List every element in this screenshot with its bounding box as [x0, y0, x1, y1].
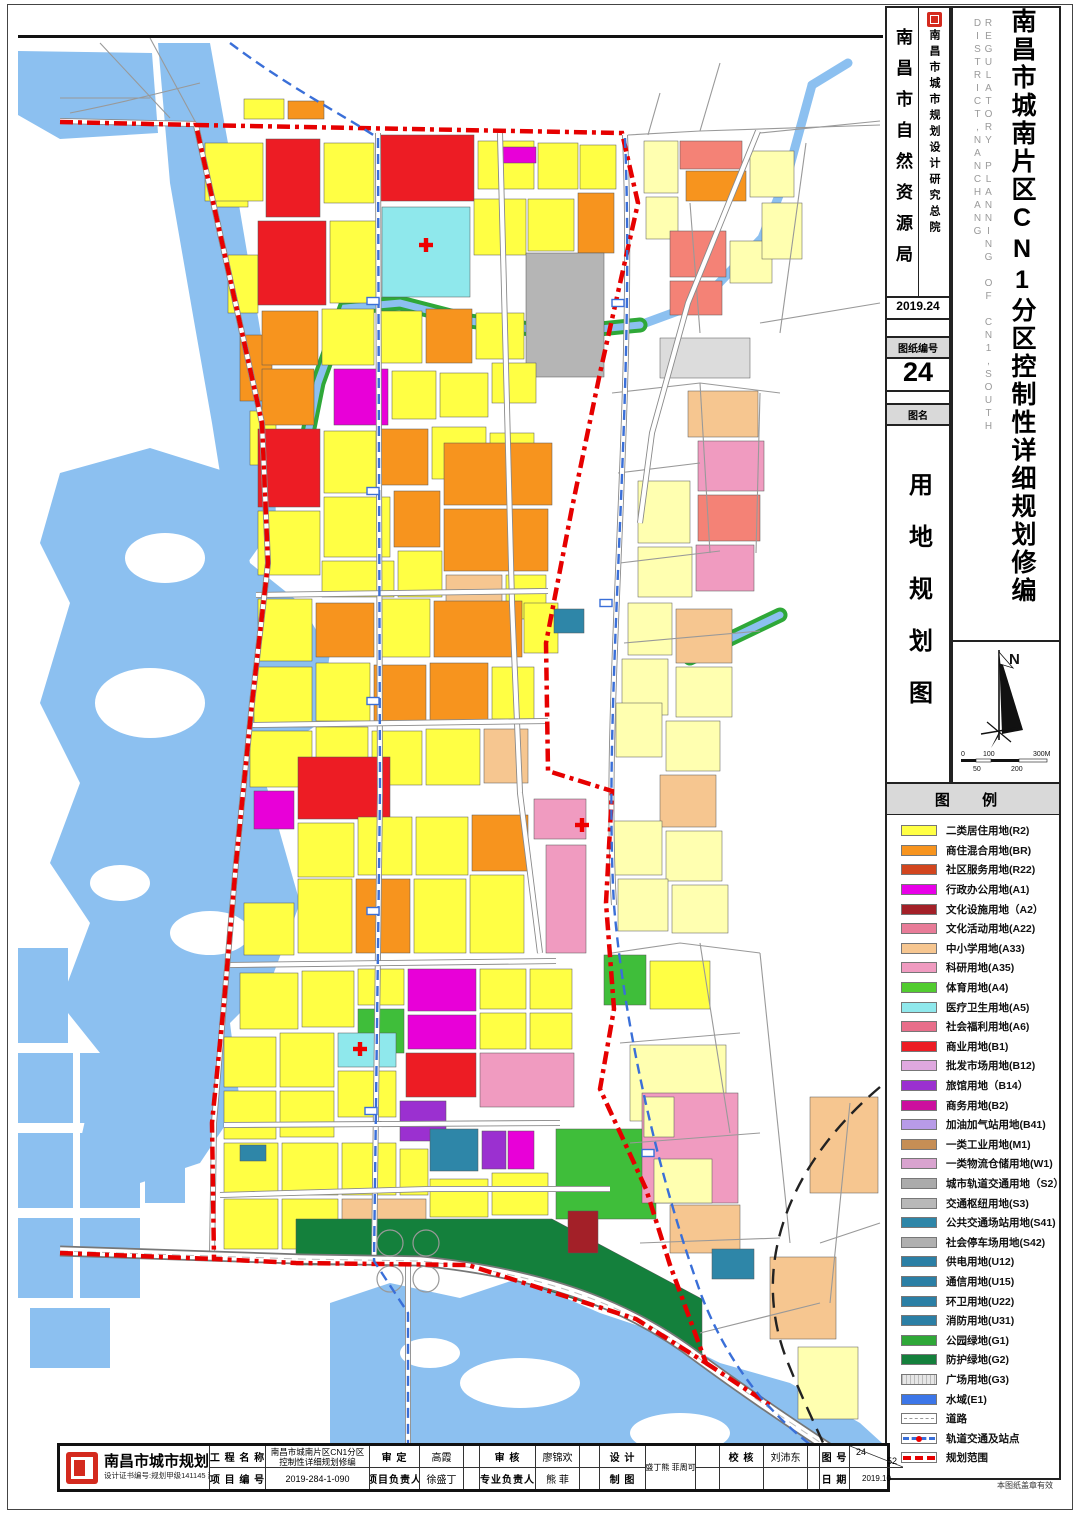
metro-station	[642, 1150, 654, 1157]
parcel	[480, 969, 526, 1009]
institute-logo-icon	[66, 1452, 98, 1484]
title-english: REGULATORY PLANNING OF CN1,SOUTH DISTRIC…	[972, 18, 994, 640]
legend-item: 交通枢纽用地(S3)	[901, 1193, 1059, 1213]
parcel	[380, 429, 428, 485]
legend-item: 通信用地(U15)	[901, 1272, 1059, 1292]
legend-label: 加油加气站用地(B41)	[946, 1117, 1046, 1132]
legend-item: 环卫用地(U22)	[901, 1291, 1059, 1311]
legend-item: 水域(E1)	[901, 1389, 1059, 1409]
legend-label: 交通枢纽用地(S3)	[946, 1196, 1029, 1211]
parcel	[254, 667, 312, 727]
legend-swatch-icon	[901, 1276, 937, 1287]
legend-label: 二类居住用地(R2)	[946, 823, 1029, 838]
legend-label: 行政办公用地(A1)	[946, 882, 1029, 897]
legend-label: 公园绿地(G1)	[946, 1333, 1009, 1348]
parcel	[526, 253, 604, 377]
parcel	[430, 1129, 478, 1171]
sheet-number: 24	[885, 355, 951, 392]
legend-label: 公共交通场站用地(S41)	[946, 1215, 1056, 1230]
pond	[18, 948, 68, 1043]
legend-swatch-icon	[901, 1452, 937, 1463]
parcel	[434, 601, 522, 657]
parcel	[660, 775, 716, 827]
legend-item: 防护绿地(G2)	[901, 1350, 1059, 1370]
parcel	[480, 1013, 526, 1049]
legend-label: 轨道交通及站点	[946, 1431, 1020, 1446]
legend-item: 文化活动用地(A22)	[901, 919, 1059, 939]
legend-item: 社会福利用地(A6)	[901, 1017, 1059, 1037]
legend-swatch-icon	[901, 1080, 937, 1091]
parcel	[224, 1199, 278, 1249]
legend-swatch-icon	[901, 1178, 937, 1189]
legend-item: 一类物流仓储用地(W1)	[901, 1154, 1059, 1174]
legend-label: 城市轨道交通用地（S2）	[946, 1176, 1064, 1191]
legend-item: 批发市场用地(B12)	[901, 1056, 1059, 1076]
project-no-label: 项 目 编 号	[210, 1468, 265, 1489]
road	[618, 463, 700, 473]
archive-number: 2019.24	[885, 294, 951, 320]
legend-label: 社会停车场用地(S42)	[946, 1235, 1045, 1250]
legend-label: 文化活动用地(A22)	[946, 921, 1035, 936]
svg-text:50: 50	[973, 766, 981, 773]
legend-label: 供电用地(U12)	[946, 1254, 1014, 1269]
design-label: 设 计	[600, 1446, 645, 1468]
land-use-map[interactable]	[18, 35, 883, 1443]
parcel	[476, 313, 524, 359]
legend-label: 一类工业用地(M1)	[946, 1137, 1031, 1152]
pond	[80, 1053, 140, 1123]
parcel	[688, 391, 758, 437]
legend-item: 规划范围	[901, 1448, 1059, 1468]
legend-label: 社区服务用地(R22)	[946, 862, 1035, 877]
legend-swatch-icon	[901, 1119, 937, 1130]
legend-label: 中小学用地(A33)	[946, 941, 1025, 956]
spacer-box	[885, 318, 951, 338]
legend-label: 防护绿地(G2)	[946, 1352, 1009, 1367]
legend-swatch-icon	[901, 1256, 937, 1267]
parcel	[298, 823, 354, 877]
parcel	[530, 969, 572, 1009]
fig-no-label: 图 号	[820, 1446, 849, 1468]
parcel	[280, 1091, 334, 1137]
legend-title: 图 例	[887, 784, 1059, 815]
legend-swatch-icon	[901, 1021, 937, 1032]
parcel	[444, 443, 552, 505]
title-box: REGULATORY PLANNING OF CN1,SOUTH DISTRIC…	[951, 6, 1061, 642]
legend-label: 文化设施用地（A2）	[946, 902, 1043, 917]
road	[760, 121, 880, 133]
legend-swatch-icon	[901, 1335, 937, 1346]
parcel	[254, 791, 294, 829]
legend-swatch-icon	[901, 1217, 937, 1228]
parcel	[492, 363, 536, 403]
institute-logo-icon	[927, 12, 942, 27]
parcel	[262, 311, 318, 365]
road	[820, 1223, 880, 1243]
svg-text:300M: 300M	[1033, 751, 1051, 758]
pond	[30, 1308, 110, 1368]
road	[224, 1123, 560, 1125]
legend-item: 商业用地(B1)	[901, 1037, 1059, 1057]
parcel	[430, 663, 488, 721]
legend-label: 商住混合用地(BR)	[946, 843, 1031, 858]
legend-label: 广场用地(G3)	[946, 1372, 1009, 1387]
parcel	[810, 1097, 878, 1193]
legend-swatch-icon	[901, 904, 937, 915]
parcel	[696, 545, 754, 591]
legend-item: 供电用地(U12)	[901, 1252, 1059, 1272]
parcel	[282, 1143, 338, 1195]
water-body	[18, 51, 158, 139]
parcel	[406, 1053, 476, 1097]
legend-label: 科研用地(A35)	[946, 960, 1014, 975]
reviewer: 廖锦欢	[536, 1446, 579, 1468]
parcel	[416, 817, 468, 875]
parcel	[712, 1249, 754, 1279]
parcel	[378, 135, 474, 201]
legend-item: 社会停车场用地(S42)	[901, 1232, 1059, 1252]
parcel	[770, 1257, 836, 1339]
road	[700, 63, 720, 131]
parcel	[302, 971, 354, 1027]
legend-swatch-icon	[901, 845, 937, 856]
legend-swatch-icon	[901, 1198, 937, 1209]
legend-label: 一类物流仓储用地(W1)	[946, 1156, 1053, 1171]
legend-swatch-icon	[901, 1433, 937, 1444]
parcel	[508, 1131, 534, 1169]
parcel	[638, 547, 692, 597]
legend-item: 科研用地(A35)	[901, 958, 1059, 978]
figure-number: 24 52	[850, 1446, 903, 1468]
plan-sheet: 南昌市自然资源局 南昌市城市规划设计研究总院 2019.24 图纸编号 24 图…	[0, 0, 1080, 1514]
legend-item: 公共交通场站用地(S41)	[901, 1213, 1059, 1233]
approve-label: 审 定	[370, 1446, 419, 1468]
metro-station	[367, 908, 379, 915]
parcel	[578, 193, 614, 253]
parcel	[342, 1143, 396, 1195]
parcel	[762, 203, 802, 259]
legend-swatch-icon	[901, 1394, 937, 1405]
org-row: 南昌市自然资源局 南昌市城市规划设计研究总院	[885, 6, 951, 298]
parcel	[538, 143, 578, 189]
legend-label: 医疗卫生用地(A5)	[946, 1000, 1029, 1015]
metro-station	[367, 298, 379, 305]
legend-item: 医疗卫生用地(A5)	[901, 997, 1059, 1017]
legend-item: 社区服务用地(R22)	[901, 860, 1059, 880]
parcel	[408, 969, 476, 1011]
legend-swatch-icon	[901, 1139, 937, 1150]
parcel	[240, 1145, 266, 1161]
parcel	[482, 1131, 506, 1169]
legend-item: 加油加气站用地(B41)	[901, 1115, 1059, 1135]
parcel	[356, 879, 410, 953]
parcel	[324, 143, 374, 203]
institute-cert: 设计证书编号:规划甲级141145 建筑甲级A136001290	[104, 1470, 209, 1481]
map-canvas	[18, 38, 883, 1443]
metro-station	[612, 300, 624, 307]
date-value: 2019.10	[850, 1468, 903, 1489]
parcel	[358, 969, 404, 1005]
legend-item: 旅馆用地（B14）	[901, 1076, 1059, 1096]
pond	[145, 1133, 185, 1203]
parcel	[618, 879, 668, 931]
parcel	[262, 369, 314, 425]
check-label: 校 核	[720, 1446, 763, 1468]
canal	[812, 63, 848, 85]
metro-station	[367, 698, 379, 705]
parcel	[492, 1173, 548, 1215]
parcel	[472, 815, 528, 871]
project-name: 南昌市城南片区CN1分区 控制性详细规划修编	[266, 1446, 369, 1468]
parcel	[244, 903, 294, 955]
road	[648, 93, 660, 135]
legend-item: 商务用地(B2)	[901, 1095, 1059, 1115]
road	[612, 943, 760, 953]
map-name: 用地规划图	[885, 422, 951, 784]
legend-swatch-icon	[901, 1413, 937, 1424]
parcel	[530, 1013, 572, 1049]
legend-swatch-icon	[901, 1002, 937, 1013]
legend-item: 轨道交通及站点	[901, 1428, 1059, 1448]
prolead: 熊 菲	[536, 1468, 579, 1489]
legend-item: 体育用地(A4)	[901, 978, 1059, 998]
parcel	[750, 151, 794, 197]
title-block: 南昌市城市规划设计研究总院 设计证书编号:规划甲级141145 建筑甲级A136…	[57, 1443, 890, 1492]
metro-station	[600, 600, 612, 607]
legend-swatch-icon	[901, 1158, 937, 1169]
parcel	[414, 879, 466, 953]
parcel	[224, 1091, 276, 1139]
institute-name: 南昌市城市规划设计研究总院	[104, 1454, 209, 1470]
legend-swatch-icon	[901, 923, 937, 934]
legend-swatch-icon	[901, 1296, 937, 1307]
parcel	[440, 373, 488, 417]
date-label: 日 期	[820, 1468, 849, 1489]
legend-label: 通信用地(U15)	[946, 1274, 1014, 1289]
parcel	[698, 441, 764, 491]
north-arrow-icon: N 0100300M 50200	[953, 638, 1055, 778]
parcel	[554, 609, 584, 633]
parcel	[670, 1205, 740, 1253]
legend-label: 消防用地(U31)	[946, 1313, 1014, 1328]
designers: 徐盛丁熊 菲周可一	[646, 1446, 695, 1489]
org-design-institute: 南昌市城市规划设计研究总院	[919, 8, 949, 296]
parcel	[528, 199, 574, 251]
pm: 徐盛丁	[420, 1468, 463, 1489]
parcel	[426, 309, 472, 363]
legend-item: 一类工业用地(M1)	[901, 1135, 1059, 1155]
legend-label: 商业用地(B1)	[946, 1039, 1008, 1054]
parcel	[534, 799, 586, 839]
parcel	[666, 831, 722, 881]
metro-station	[367, 488, 379, 495]
legend-swatch-icon	[901, 943, 937, 954]
legend-label: 社会福利用地(A6)	[946, 1019, 1029, 1034]
parcel	[676, 667, 732, 717]
road	[760, 303, 880, 323]
parcel	[546, 845, 586, 953]
north-label: N	[1009, 651, 1020, 668]
legend-item: 文化设施用地（A2）	[901, 899, 1059, 919]
parcel	[628, 603, 672, 655]
legend-swatch-icon	[901, 1354, 937, 1365]
project-no: 2019-284-1-090	[266, 1468, 369, 1489]
legend-item: 城市轨道交通用地（S2）	[901, 1174, 1059, 1194]
legend-item: 中小学用地(A33)	[901, 939, 1059, 959]
parcel	[258, 599, 312, 661]
parcel	[258, 221, 326, 305]
seal-note: 本图纸盖章有效	[997, 1480, 1053, 1491]
parcel	[378, 599, 430, 657]
parcel	[316, 603, 374, 657]
svg-text:200: 200	[1011, 766, 1023, 773]
parcel	[524, 603, 558, 653]
parcel	[316, 663, 370, 721]
legend-item: 商住混合用地(BR)	[901, 841, 1059, 861]
parcel	[480, 1053, 574, 1107]
parcel	[240, 973, 298, 1029]
legend: 图 例 二类居住用地(R2)商住混合用地(BR)社区服务用地(R22)行政办公用…	[885, 782, 1061, 1480]
legend-item: 广场用地(G3)	[901, 1370, 1059, 1390]
parcel	[394, 491, 440, 547]
pond	[18, 1053, 73, 1123]
road	[760, 953, 790, 1243]
legend-swatch-icon	[901, 982, 937, 993]
parcel	[680, 141, 742, 169]
parcel	[650, 961, 710, 1009]
parcel	[322, 309, 374, 365]
draft-label: 制 图	[600, 1468, 645, 1489]
pond	[18, 1218, 73, 1298]
legend-label: 水域(E1)	[946, 1392, 987, 1407]
prolead-label: 专业负责人	[480, 1468, 535, 1489]
parcel	[298, 757, 390, 819]
parcel	[288, 101, 324, 119]
legend-item: 二类居住用地(R2)	[901, 821, 1059, 841]
checker: 刘沛东	[764, 1446, 807, 1468]
legend-item: 行政办公用地(A1)	[901, 880, 1059, 900]
parcel	[330, 221, 378, 303]
parcel	[502, 147, 536, 163]
parcel	[568, 1211, 598, 1253]
legend-swatch-icon	[901, 1041, 937, 1052]
legend-swatch-icon	[901, 962, 937, 973]
legend-swatch-icon	[901, 825, 937, 836]
pond	[145, 1063, 185, 1123]
legend-item: 道路	[901, 1409, 1059, 1429]
road	[620, 1033, 740, 1043]
legend-label: 道路	[946, 1411, 967, 1426]
svg-text:0: 0	[961, 751, 965, 758]
legend-label: 规划范围	[946, 1450, 988, 1465]
legend-swatch-icon	[901, 1237, 937, 1248]
parcel	[426, 729, 480, 785]
parcel	[644, 141, 678, 193]
parcel	[244, 99, 284, 119]
north-arrow-box: N 0100300M 50200	[951, 638, 1061, 784]
metro-station	[365, 1108, 377, 1115]
title-chinese: 南昌市城南片区CN1分区控制性详细规划修编	[1004, 8, 1040, 640]
parcel	[580, 145, 616, 189]
review-label: 审 核	[480, 1446, 535, 1468]
legend-label: 商务用地(B2)	[946, 1098, 1008, 1113]
parcel	[430, 1179, 488, 1217]
parcel	[266, 139, 320, 217]
parcel	[324, 431, 376, 493]
legend-label: 体育用地(A4)	[946, 980, 1008, 995]
pm-label: 项目负责人	[370, 1468, 419, 1489]
parcel	[444, 509, 548, 571]
legend-swatch-icon	[901, 864, 937, 875]
legend-swatch-icon	[901, 1060, 937, 1071]
pond	[80, 1133, 140, 1208]
project-name-label: 工 程 名 称	[210, 1446, 265, 1468]
parcel	[616, 703, 662, 757]
right-panel: 南昌市自然资源局 南昌市城市规划设计研究总院 2019.24 图纸编号 24 图…	[885, 6, 1057, 1500]
institute-cell: 南昌市城市规划设计研究总院 设计证书编号:规划甲级141145 建筑甲级A136…	[60, 1446, 209, 1489]
svg-text:100: 100	[983, 751, 995, 758]
parcel	[378, 311, 422, 363]
legend-item: 公园绿地(G1)	[901, 1330, 1059, 1350]
parcel	[408, 1015, 476, 1049]
parcel	[224, 1037, 276, 1087]
legend-item: 消防用地(U31)	[901, 1311, 1059, 1331]
parcel	[672, 885, 728, 933]
legend-label: 环卫用地(U22)	[946, 1294, 1014, 1309]
interchange-ramp	[413, 1266, 439, 1292]
legend-swatch-icon	[901, 1100, 937, 1111]
legend-label: 批发市场用地(B12)	[946, 1058, 1035, 1073]
parcel	[654, 1159, 712, 1203]
approver: 高霞	[420, 1446, 463, 1468]
legend-items: 二类居住用地(R2)商住混合用地(BR)社区服务用地(R22)行政办公用地(A1…	[887, 815, 1059, 1468]
legend-swatch-icon	[901, 884, 937, 895]
legend-swatch-icon	[901, 1374, 937, 1385]
parcel	[470, 875, 524, 953]
legend-swatch-icon	[901, 1315, 937, 1326]
parcel	[298, 879, 352, 953]
parcel	[392, 371, 436, 419]
legend-label: 旅馆用地（B14）	[946, 1078, 1028, 1093]
pond	[18, 1133, 73, 1208]
org-natural-resources: 南昌市自然资源局	[887, 8, 919, 296]
parcel	[280, 1033, 334, 1087]
parcel	[666, 721, 720, 771]
parcel	[358, 817, 412, 875]
parcel	[614, 821, 662, 875]
